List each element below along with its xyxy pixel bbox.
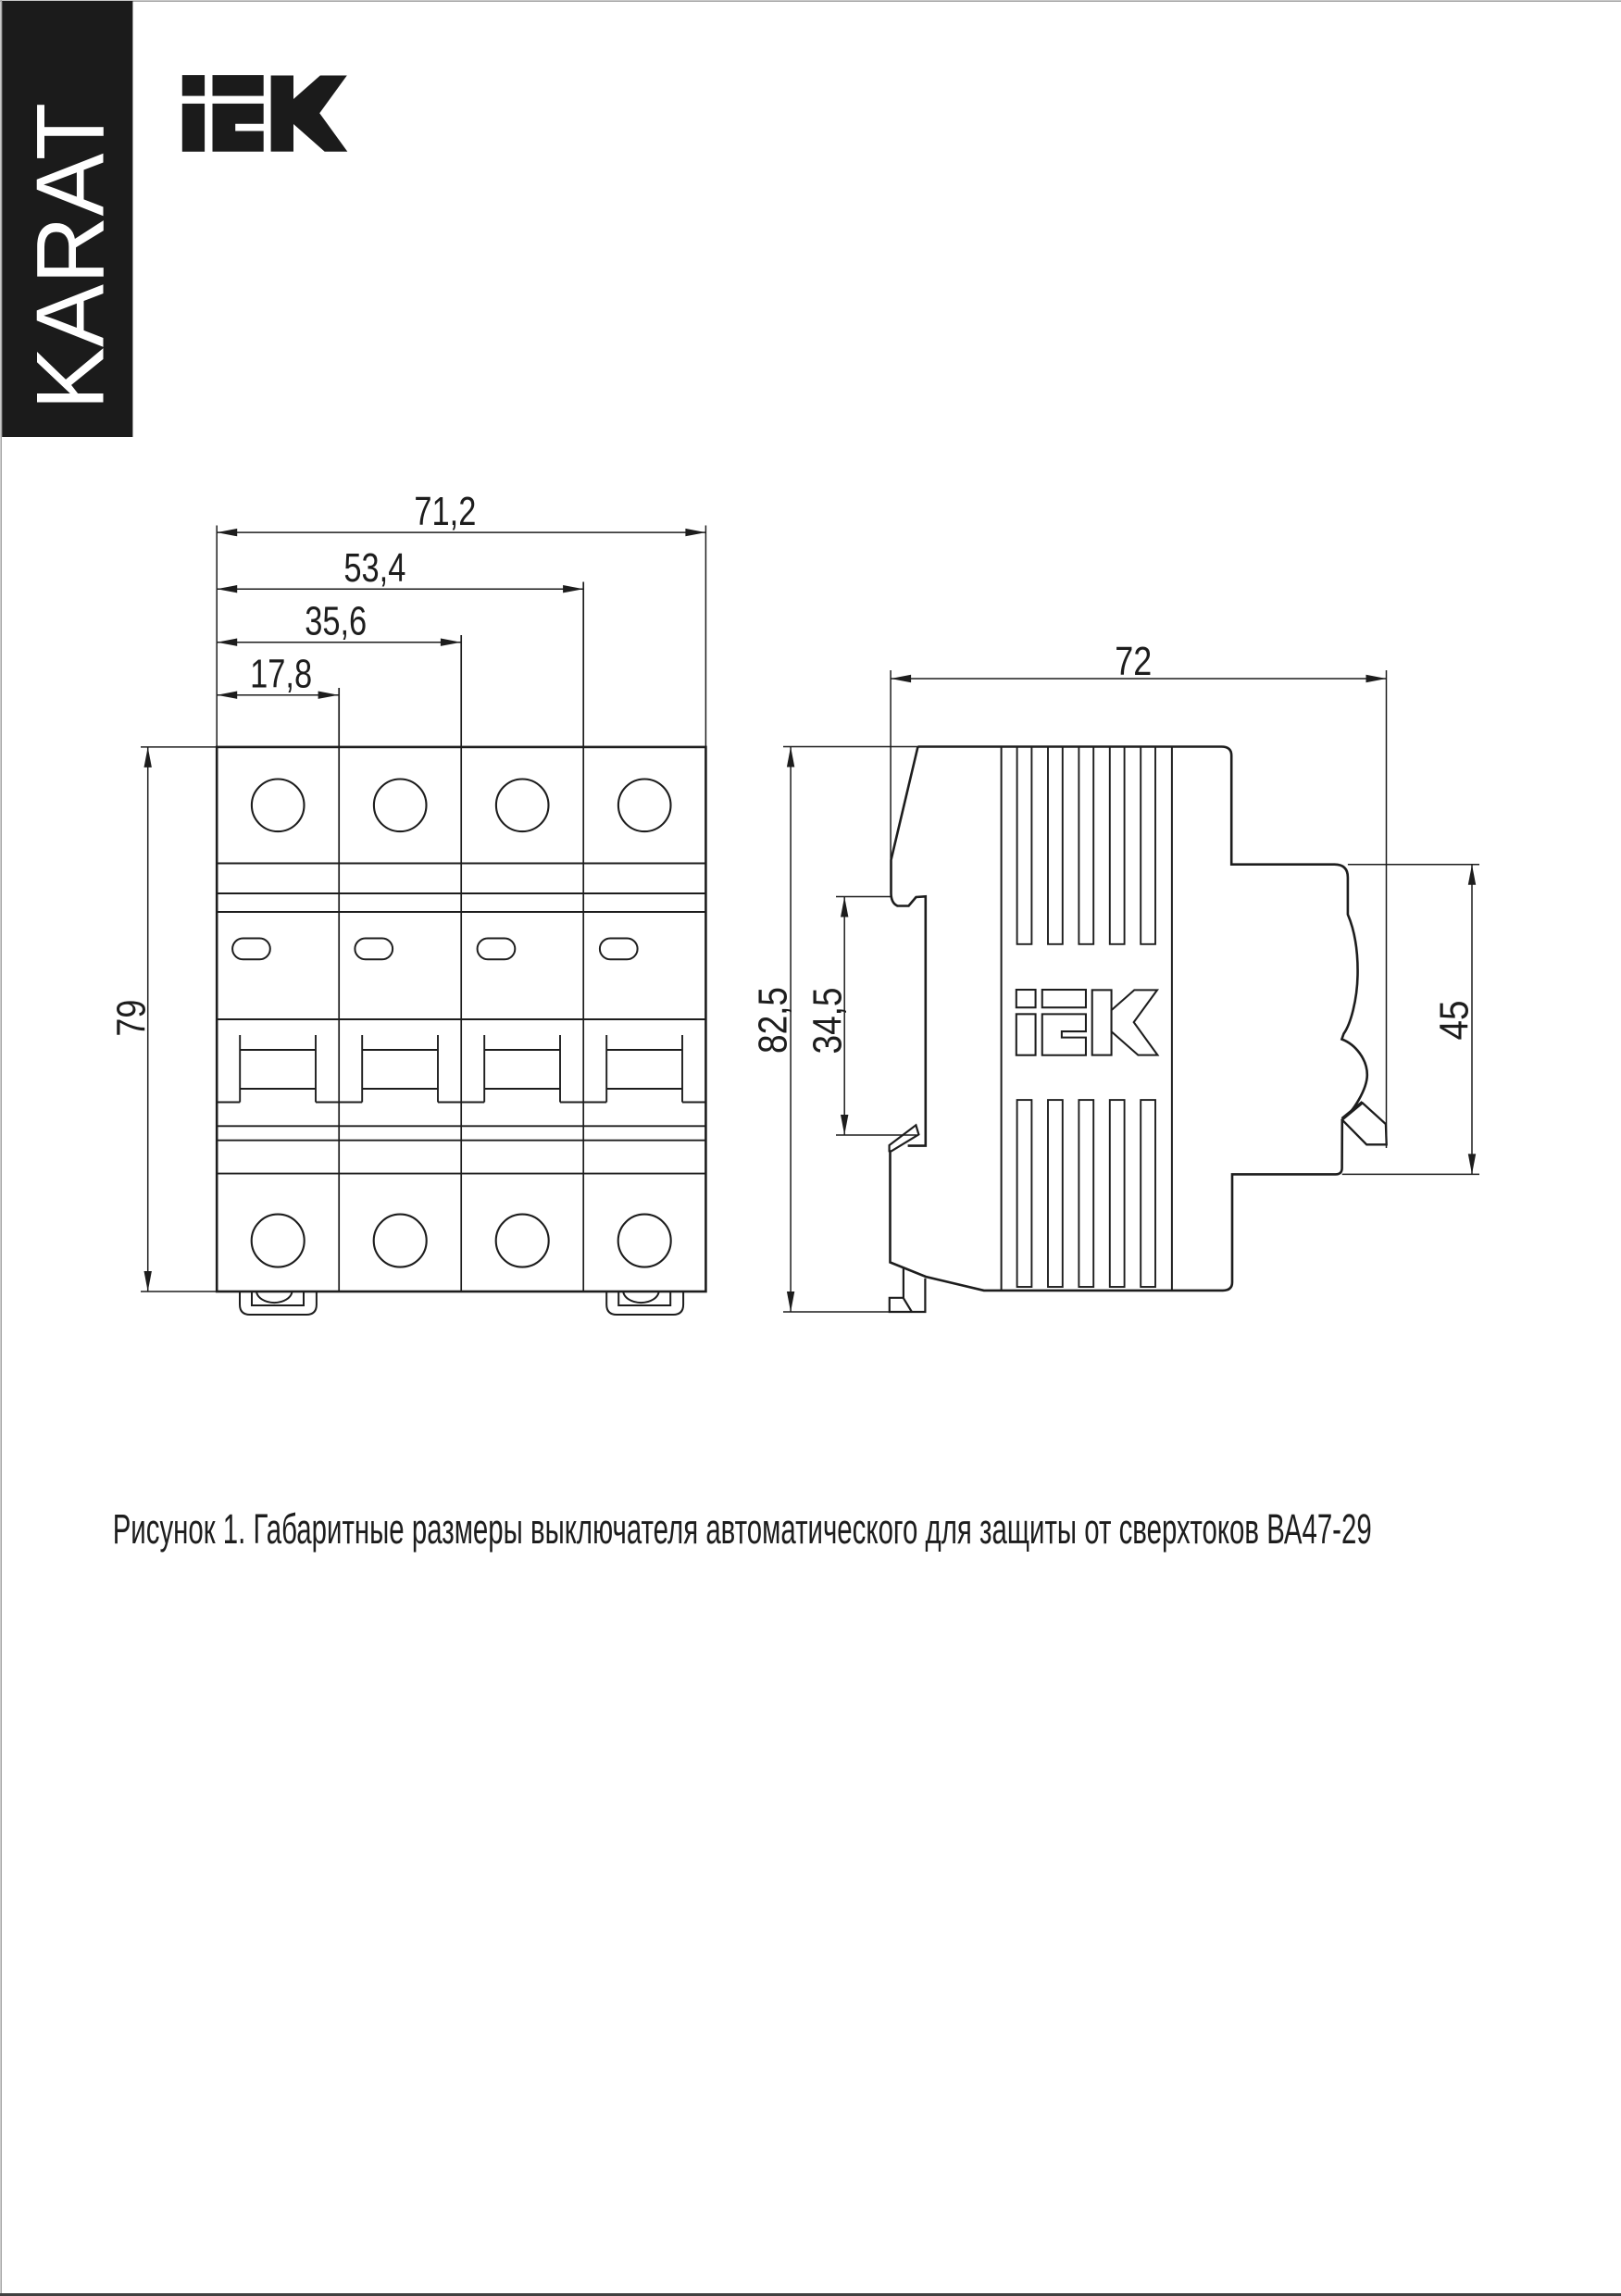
svg-text:35,6: 35,6: [305, 599, 367, 644]
svg-text:79: 79: [109, 1000, 155, 1037]
svg-text:82,5: 82,5: [751, 987, 796, 1054]
svg-text:17,8: 17,8: [250, 652, 312, 697]
svg-text:KARAT: KARAT: [18, 103, 125, 410]
svg-text:72: 72: [1115, 639, 1152, 684]
svg-text:Рисунок 1. Габаритные размеры: Рисунок 1. Габаритные размеры выключател…: [113, 1505, 1372, 1553]
svg-text:71,2: 71,2: [414, 489, 476, 534]
svg-text:34,5: 34,5: [805, 988, 851, 1054]
svg-text:53,4: 53,4: [343, 545, 405, 591]
svg-text:45: 45: [1432, 1001, 1478, 1041]
